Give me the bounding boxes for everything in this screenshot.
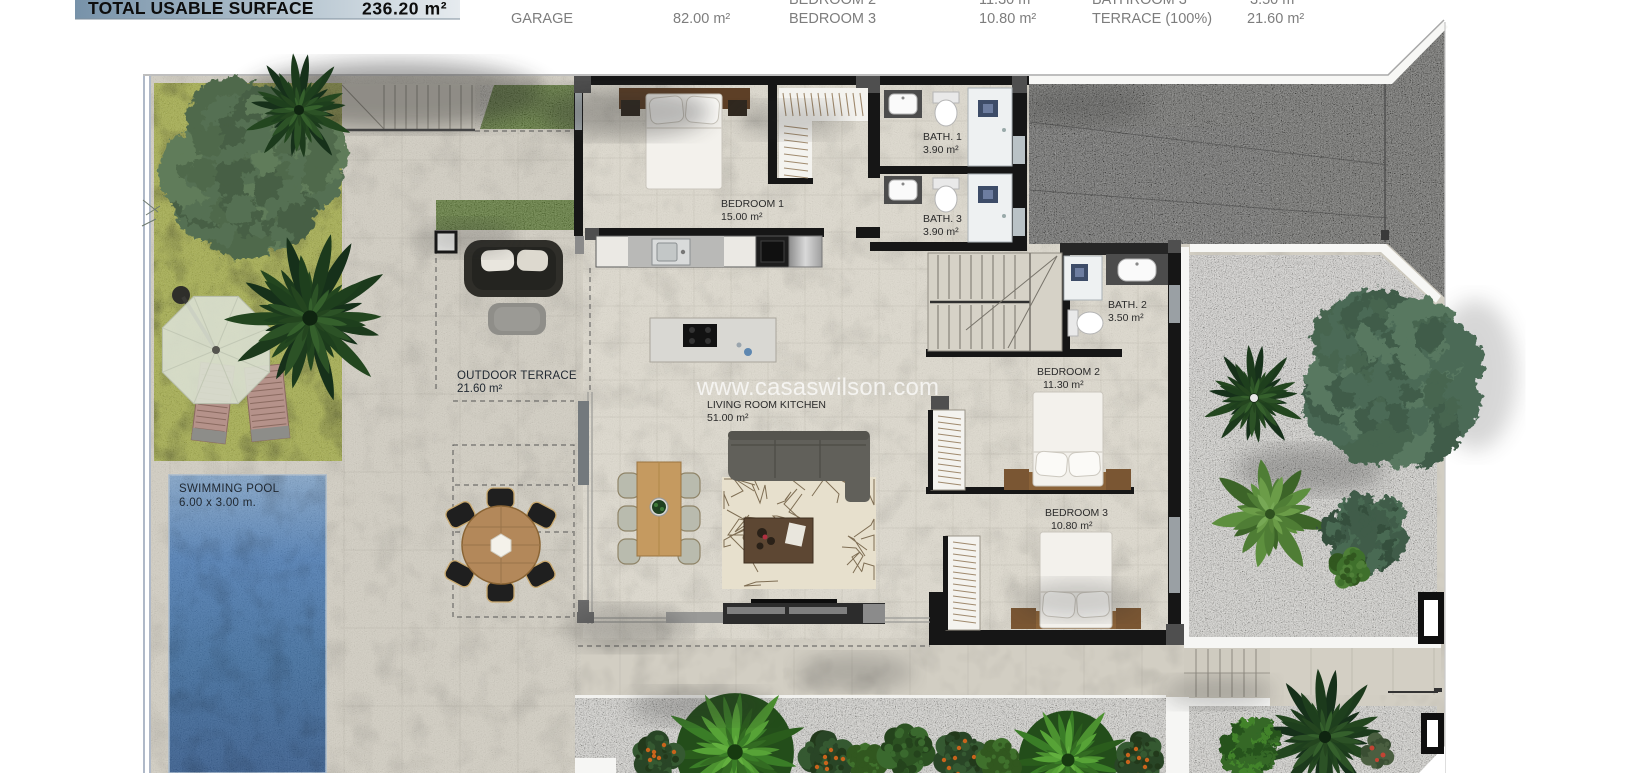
svg-text:BEDROOM 2: BEDROOM 2	[1037, 366, 1100, 378]
svg-text:11.30 m²: 11.30 m²	[1043, 379, 1084, 391]
svg-text:BATHROOM 3: BATHROOM 3	[1092, 0, 1187, 8]
svg-text:TOTAL USABLE SURFACE: TOTAL USABLE SURFACE	[88, 0, 314, 18]
svg-text:11.30 m²: 11.30 m²	[979, 0, 1035, 8]
svg-text:www.casaswilson.com: www.casaswilson.com	[696, 374, 940, 401]
svg-text:21.60 m²: 21.60 m²	[1247, 11, 1304, 27]
svg-text:BATH. 2: BATH. 2	[1108, 299, 1147, 311]
svg-text:15.00 m²: 15.00 m²	[721, 211, 763, 223]
svg-text:BATH. 3: BATH. 3	[923, 213, 962, 225]
svg-text:BEDROOM 3: BEDROOM 3	[789, 11, 876, 27]
svg-text:3.50 m²: 3.50 m²	[1108, 312, 1144, 324]
svg-text:6.00 x 3.00 m.: 6.00 x 3.00 m.	[179, 497, 256, 509]
svg-text:236.20 m²: 236.20 m²	[362, 0, 447, 19]
svg-text:BEDROOM 2: BEDROOM 2	[789, 0, 876, 8]
svg-text:10.80 m²: 10.80 m²	[1051, 520, 1093, 532]
svg-text:BATH. 1: BATH. 1	[923, 131, 962, 143]
svg-text:BEDROOM 3: BEDROOM 3	[1045, 507, 1108, 519]
svg-text:OUTDOOR TERRACE: OUTDOOR TERRACE	[457, 370, 577, 382]
svg-text:3.90 m²: 3.90 m²	[923, 226, 959, 238]
svg-text:3.90 m²: 3.90 m²	[923, 144, 959, 156]
svg-text:51.00 m²: 51.00 m²	[707, 412, 749, 424]
svg-text:82.00 m²: 82.00 m²	[673, 11, 730, 27]
svg-text:SWIMMING POOL: SWIMMING POOL	[179, 483, 280, 495]
svg-text:3.50 m²: 3.50 m²	[1250, 0, 1299, 8]
svg-text:TERRACE (100%): TERRACE (100%)	[1092, 11, 1212, 27]
svg-text:21.60 m²: 21.60 m²	[457, 383, 503, 395]
svg-text:10.80 m²: 10.80 m²	[979, 11, 1036, 27]
svg-text:GARAGE: GARAGE	[511, 11, 573, 27]
svg-text:BEDROOM 1: BEDROOM 1	[721, 198, 784, 210]
